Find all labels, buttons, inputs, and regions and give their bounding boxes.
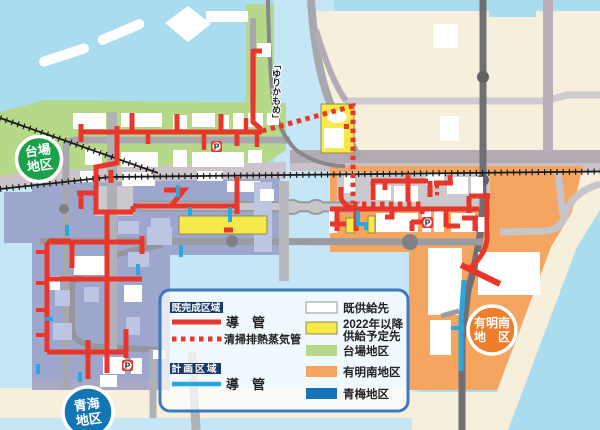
svg-text:青梅地区: 青梅地区 <box>343 387 389 401</box>
svg-text:供給予定先: 供給予定先 <box>342 329 401 343</box>
svg-text:計画区域: 計画区域 <box>171 362 218 375</box>
svg-text:地 区: 地 区 <box>474 329 510 344</box>
svg-text:既供給先: 既供給先 <box>343 301 389 315</box>
svg-text:P: P <box>425 219 431 228</box>
svg-text:P: P <box>125 362 131 371</box>
svg-text:P: P <box>214 143 220 152</box>
svg-text:既完成区域: 既完成区域 <box>172 301 221 314</box>
svg-text:有明南: 有明南 <box>474 315 510 330</box>
svg-text:導 管: 導 管 <box>226 315 265 330</box>
svg-text:2022年以降: 2022年以降 <box>343 317 404 331</box>
svg-text:清掃排熱蒸気管: 清掃排熱蒸気管 <box>224 332 301 346</box>
svg-text:有明南地区: 有明南地区 <box>343 365 401 379</box>
svg-text:台場地区: 台場地区 <box>343 344 389 358</box>
svg-text:導 管: 導 管 <box>226 377 265 392</box>
svg-text:「ゆりかもめ」: 「ゆりかもめ」 <box>271 60 281 123</box>
